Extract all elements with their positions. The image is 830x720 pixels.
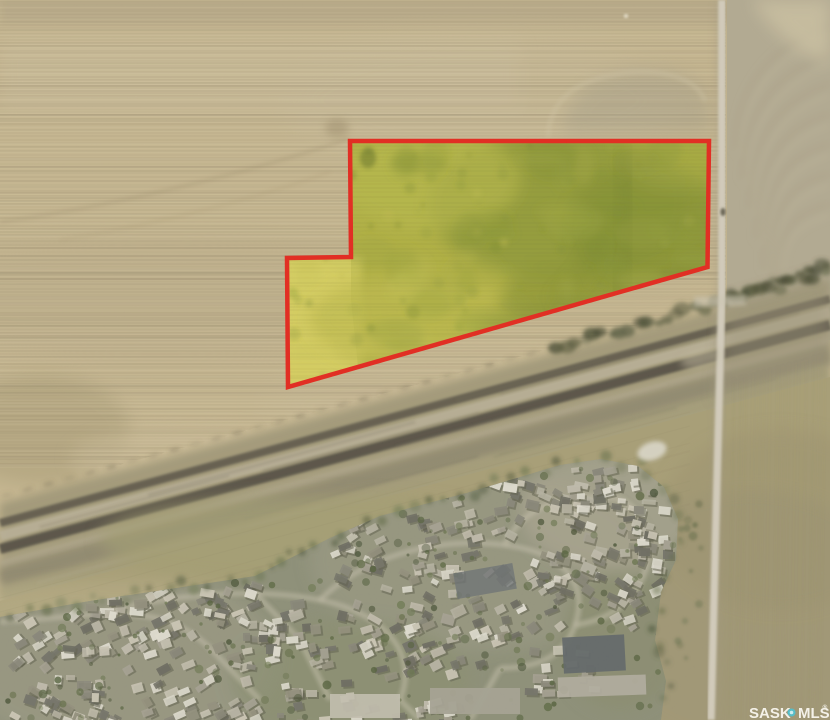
svg-text:SASK: SASK [749, 705, 791, 720]
svg-text:®: ® [823, 703, 828, 711]
